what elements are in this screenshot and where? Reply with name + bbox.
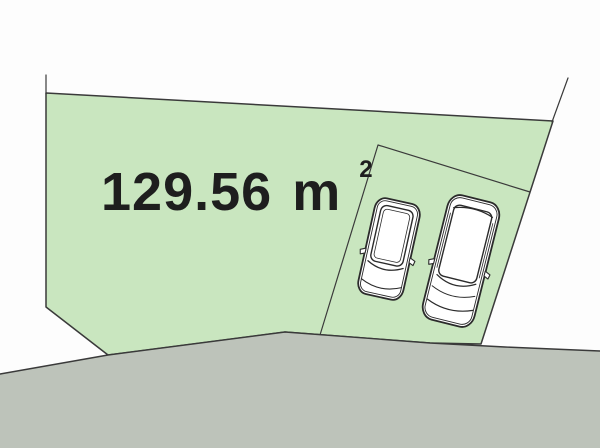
area-label: 129.56 m 2 bbox=[101, 156, 373, 222]
area-exponent-text: 2 bbox=[359, 156, 372, 183]
lot-plan-diagram: 129.56 m 2 bbox=[0, 0, 600, 448]
area-value-text: 129.56 bbox=[101, 162, 272, 222]
road-shape bbox=[0, 332, 600, 448]
area-unit-text: m bbox=[292, 162, 341, 222]
boundary-extension-line-top-right bbox=[552, 78, 568, 122]
